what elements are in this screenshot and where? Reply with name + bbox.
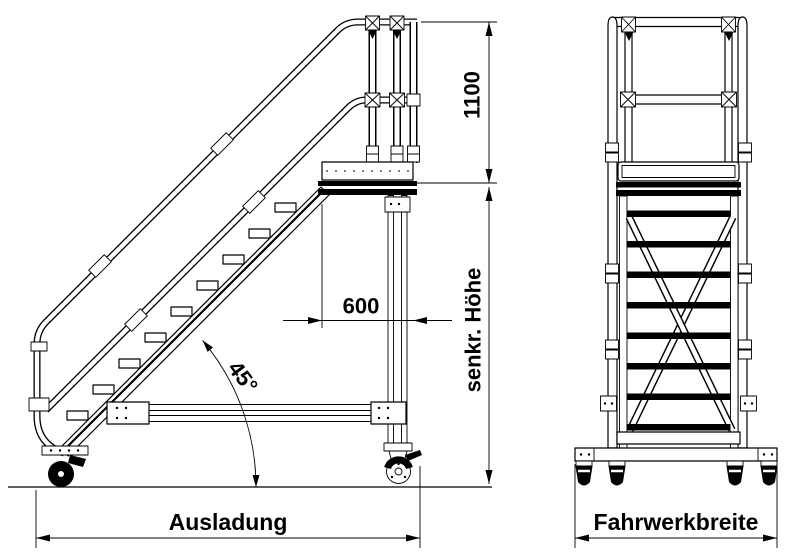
clamp	[29, 398, 49, 411]
tie-tube	[149, 405, 371, 411]
arrowhead	[308, 317, 322, 324]
tower-tube	[731, 196, 739, 448]
technical-drawing-page: 1100 senkr. Höhe 600 45° Ausladung Fahrw…	[0, 0, 800, 556]
tie-bracket	[741, 396, 757, 411]
arrowhead	[406, 535, 420, 542]
dimension-1100: 1100	[417, 22, 497, 183]
brake-lever	[405, 450, 422, 461]
wheel-hub	[395, 468, 402, 475]
stair-platform-drawing: 1100 senkr. Höhe 600 45° Ausladung Fahrw…	[0, 0, 800, 556]
arrowhead	[763, 535, 777, 542]
caster-plate	[384, 443, 412, 451]
rear-caster	[384, 443, 422, 484]
caster-wheels	[576, 466, 778, 486]
dim-1100-label: 1100	[460, 71, 485, 119]
senkr-hoehe-label: senkr. Höhe	[461, 268, 486, 393]
chassis-beam	[575, 448, 777, 461]
dimension-45deg: 45°	[203, 340, 263, 487]
tie-plate	[107, 402, 149, 424]
mid-rail	[632, 95, 725, 104]
arrowhead	[575, 535, 589, 542]
clamp-wedge	[368, 30, 402, 39]
clamp	[211, 133, 234, 156]
inner-post	[625, 20, 632, 163]
front-casters	[576, 461, 778, 486]
clamp	[125, 309, 148, 332]
angle-45-label: 45°	[223, 356, 263, 398]
dim-600-label: 600	[343, 294, 380, 319]
dimension-fahrwerkbreite: Fahrwerkbreite	[575, 464, 777, 548]
arrowhead	[413, 317, 427, 324]
deck-edge-strip	[318, 189, 417, 195]
leg-head-fitting	[385, 197, 410, 212]
outer-post	[608, 17, 617, 448]
tower-tube	[620, 196, 628, 448]
side-view	[8, 16, 492, 487]
dimension-600: 600	[283, 204, 452, 328]
deck-edge-strip	[318, 181, 417, 186]
dimension-lines	[575, 464, 777, 548]
dimension-senkr-hoehe: senkr. Höhe	[461, 187, 493, 484]
brake-lever	[68, 455, 86, 467]
bottom-cross-member	[617, 432, 740, 444]
tie-bracket	[601, 396, 617, 411]
caster-plate	[42, 446, 88, 455]
wheel-hub	[58, 471, 64, 477]
platform-deck-front	[616, 162, 741, 196]
arrowhead	[486, 470, 493, 484]
platform-guardrail-posts	[373, 22, 414, 163]
arrowhead	[203, 340, 213, 352]
arrowhead	[486, 169, 493, 183]
deck-edge-strip	[616, 190, 741, 196]
deck-board	[618, 162, 739, 181]
platform-deck	[318, 162, 417, 195]
chassis	[575, 448, 777, 461]
post-outline	[373, 22, 414, 163]
clamp	[31, 342, 47, 351]
knee-rail-clamp	[365, 93, 420, 107]
ausladung-label: Ausladung	[169, 509, 288, 535]
dimension-ausladung: Ausladung	[36, 466, 420, 548]
tie-tube	[149, 416, 371, 422]
arrowhead	[36, 535, 50, 542]
clamp-wedge	[625, 32, 734, 41]
deck-edge-strip	[616, 182, 741, 188]
outer-post	[738, 17, 747, 448]
clamp	[89, 255, 112, 278]
arrowhead	[253, 475, 260, 487]
fahrwerkbreite-label: Fahrwerkbreite	[594, 509, 759, 535]
tie-plate	[371, 402, 406, 424]
dimension-lines	[36, 466, 420, 548]
arrowhead	[486, 187, 493, 201]
step-treads	[67, 203, 296, 420]
dimension-lines	[417, 22, 497, 183]
caster-brackets	[576, 461, 777, 466]
inner-post	[725, 20, 732, 163]
front-caster	[42, 446, 88, 487]
clamp	[243, 191, 266, 214]
arrowhead	[486, 22, 493, 36]
front-view	[575, 17, 778, 486]
tie-bar	[107, 402, 406, 424]
